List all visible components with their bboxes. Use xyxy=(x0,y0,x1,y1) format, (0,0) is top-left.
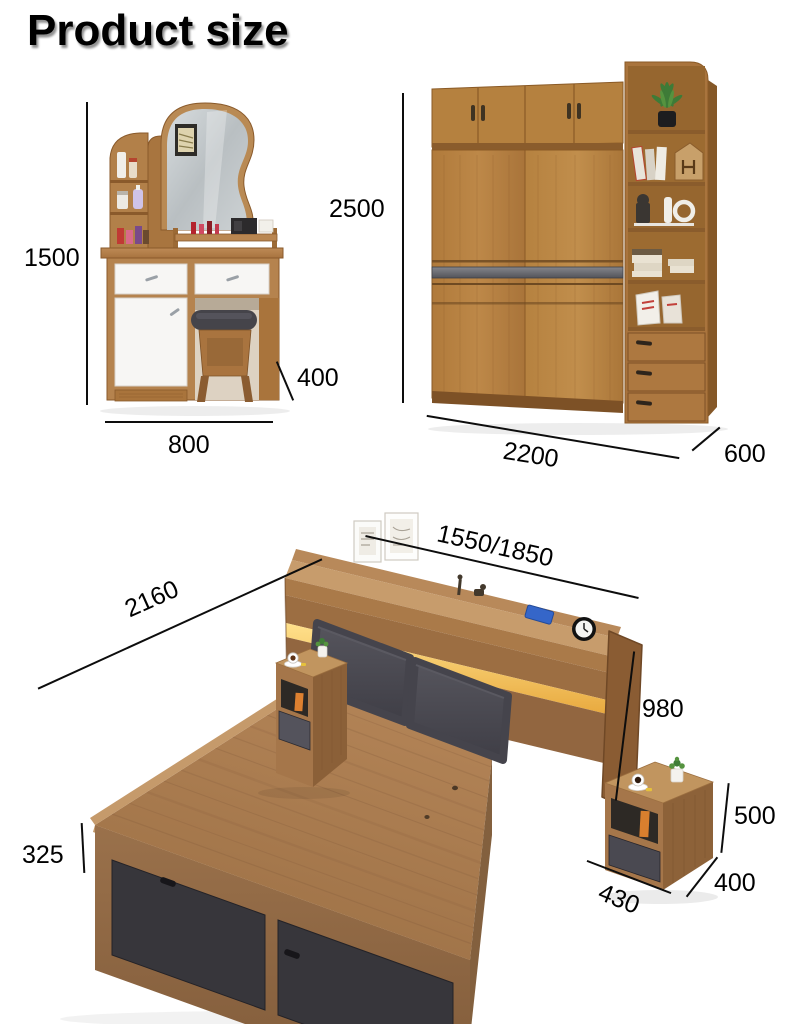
dresser-drawer-left xyxy=(115,264,187,294)
wardrobe-sliding-doors xyxy=(432,143,623,413)
bed-base-height-label: 325 xyxy=(22,842,64,868)
wardrobe-drawers xyxy=(628,333,705,421)
headboard-height-label: 980 xyxy=(642,696,684,722)
dresser-width-line xyxy=(105,421,273,423)
dresser-drawer-right xyxy=(195,264,269,294)
right-nightstand-plant xyxy=(669,757,685,782)
dresser-height-label: 1500 xyxy=(24,245,80,271)
wardrobe-width-label: 2200 xyxy=(501,438,560,473)
dresser-side-shelf xyxy=(110,133,149,253)
dresser-depth-label: 400 xyxy=(297,365,339,391)
dresser-height-line xyxy=(86,102,88,405)
nightstand-height-label: 500 xyxy=(734,803,776,829)
dresser-width-label: 800 xyxy=(168,432,210,458)
picture-frames xyxy=(354,513,418,562)
wardrobe-height-line xyxy=(402,93,404,403)
wardrobe-top-cabinets xyxy=(432,82,623,147)
wardrobe-depth-label: 600 xyxy=(724,441,766,467)
alarm-clock xyxy=(572,617,596,641)
dresser-floor-shadow xyxy=(100,406,290,416)
nightstand-depth-label: 400 xyxy=(714,870,756,896)
dresser-cabinet-door xyxy=(115,298,187,386)
dresser-bottom-drawer xyxy=(115,390,187,401)
product-size-infographic: Product size xyxy=(0,0,790,1024)
page-title: Product size xyxy=(27,6,289,56)
wardrobe-side-shelf-tower xyxy=(625,62,717,423)
wardrobe-height-label: 2500 xyxy=(329,196,385,222)
wardrobe-illustration xyxy=(420,55,770,440)
wardrobe-floor-shadow xyxy=(428,423,728,435)
